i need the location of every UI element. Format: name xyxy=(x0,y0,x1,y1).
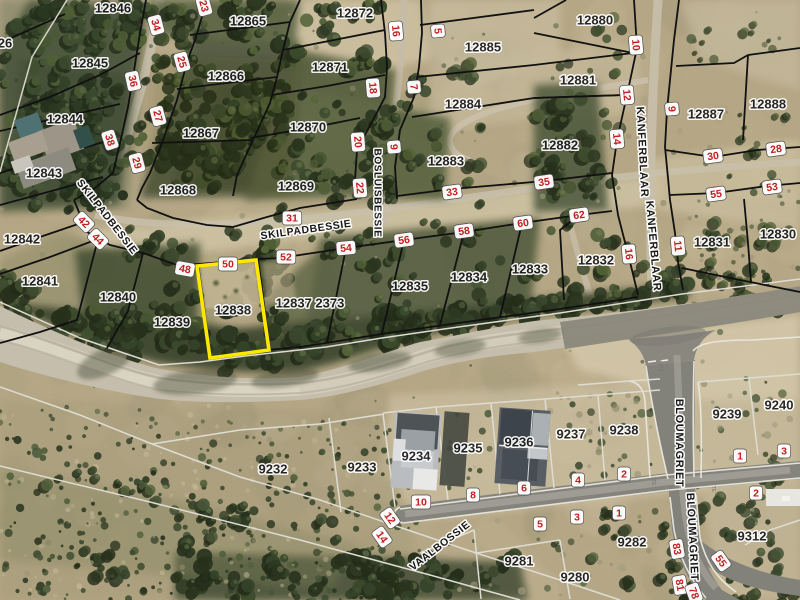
svg-text:30: 30 xyxy=(706,150,719,164)
svg-text:12883: 12883 xyxy=(428,154,464,169)
svg-text:20: 20 xyxy=(351,136,364,149)
svg-text:12832: 12832 xyxy=(578,253,614,268)
svg-text:BOSLUISBESSIE: BOSLUISBESSIE xyxy=(372,149,383,238)
svg-text:4: 4 xyxy=(575,475,581,487)
svg-text:12884: 12884 xyxy=(445,97,482,112)
svg-text:28: 28 xyxy=(769,143,782,157)
svg-text:16: 16 xyxy=(622,248,635,261)
svg-text:12830: 12830 xyxy=(760,227,796,242)
svg-text:56: 56 xyxy=(397,234,410,248)
svg-text:33: 33 xyxy=(445,186,458,200)
svg-text:12867: 12867 xyxy=(183,126,219,141)
svg-text:41TE: 41TE xyxy=(657,360,663,373)
svg-text:54: 54 xyxy=(340,242,353,255)
svg-text:26: 26 xyxy=(0,36,12,51)
svg-text:9232: 9232 xyxy=(259,462,288,477)
svg-text:60: 60 xyxy=(516,217,529,231)
svg-text:12881: 12881 xyxy=(560,73,596,88)
svg-text:9: 9 xyxy=(387,144,399,151)
svg-text:2: 2 xyxy=(621,469,627,481)
svg-text:12880: 12880 xyxy=(577,13,613,28)
svg-text:81: 81 xyxy=(673,578,687,592)
svg-text:12843: 12843 xyxy=(26,166,62,181)
svg-text:1: 1 xyxy=(616,508,622,520)
svg-text:9239: 9239 xyxy=(713,407,742,422)
svg-text:TE: TE xyxy=(710,486,716,493)
svg-text:12840: 12840 xyxy=(100,290,136,305)
svg-text:12882: 12882 xyxy=(542,138,578,153)
svg-text:58: 58 xyxy=(457,225,470,239)
svg-text:7: 7 xyxy=(407,84,419,91)
svg-text:35: 35 xyxy=(537,176,550,190)
svg-text:9238: 9238 xyxy=(610,423,639,438)
svg-text:83: 83 xyxy=(670,542,684,556)
svg-text:12887: 12887 xyxy=(688,107,724,122)
svg-text:1: 1 xyxy=(737,451,743,463)
svg-text:12837 2373: 12837 2373 xyxy=(276,296,345,311)
svg-text:BLOUMAGRIET: BLOUMAGRIET xyxy=(673,399,685,487)
svg-text:12844: 12844 xyxy=(47,112,84,127)
svg-text:8: 8 xyxy=(470,490,476,502)
svg-text:9235: 9235 xyxy=(454,441,483,456)
svg-text:1TE: 1TE xyxy=(650,476,656,486)
svg-text:52: 52 xyxy=(280,252,292,264)
svg-text:12839: 12839 xyxy=(154,315,190,330)
svg-text:11: 11 xyxy=(671,240,684,252)
svg-text:9280: 9280 xyxy=(561,570,590,585)
svg-text:5: 5 xyxy=(537,519,543,531)
svg-text:14: 14 xyxy=(610,133,623,146)
svg-text:50: 50 xyxy=(222,259,234,271)
svg-text:12870: 12870 xyxy=(290,120,326,135)
svg-text:9240: 9240 xyxy=(765,398,794,413)
svg-text:9312: 9312 xyxy=(738,529,767,544)
svg-text:12868: 12868 xyxy=(160,183,196,198)
svg-text:5: 5 xyxy=(431,28,443,35)
svg-text:16: 16 xyxy=(389,25,402,38)
svg-text:55: 55 xyxy=(709,188,722,202)
svg-text:12872: 12872 xyxy=(337,6,373,21)
svg-text:10: 10 xyxy=(415,497,427,509)
svg-text:10: 10 xyxy=(629,39,642,52)
svg-text:12831: 12831 xyxy=(694,235,730,250)
svg-text:9281: 9281 xyxy=(505,554,534,569)
svg-text:3: 3 xyxy=(781,446,787,458)
svg-text:12835: 12835 xyxy=(392,279,428,294)
svg-text:12846: 12846 xyxy=(95,1,131,16)
svg-text:12845: 12845 xyxy=(72,56,108,71)
svg-text:12838: 12838 xyxy=(215,303,251,318)
svg-text:9234: 9234 xyxy=(402,449,432,464)
svg-text:12833: 12833 xyxy=(512,262,548,277)
svg-text:62: 62 xyxy=(572,209,585,223)
svg-text:12866: 12866 xyxy=(208,69,244,84)
svg-text:9237: 9237 xyxy=(557,427,586,442)
svg-text:9233: 9233 xyxy=(348,460,377,475)
svg-text:12885: 12885 xyxy=(465,40,501,55)
svg-text:48: 48 xyxy=(178,263,192,277)
svg-text:53: 53 xyxy=(765,181,778,195)
svg-text:9236: 9236 xyxy=(505,435,534,450)
svg-text:3: 3 xyxy=(574,512,580,524)
svg-text:22: 22 xyxy=(353,182,366,195)
svg-text:12834: 12834 xyxy=(451,270,488,285)
svg-text:12842: 12842 xyxy=(4,232,40,247)
svg-text:12871: 12871 xyxy=(312,60,348,75)
svg-text:12869: 12869 xyxy=(278,179,314,194)
svg-text:12: 12 xyxy=(620,89,633,102)
svg-text:18: 18 xyxy=(366,82,379,95)
svg-text:2: 2 xyxy=(753,488,759,500)
svg-text:9282: 9282 xyxy=(618,535,647,550)
svg-text:12865: 12865 xyxy=(230,14,266,29)
svg-text:31: 31 xyxy=(286,213,298,225)
svg-text:12841: 12841 xyxy=(22,274,58,289)
svg-text:12888: 12888 xyxy=(750,97,786,112)
svg-text:9: 9 xyxy=(665,106,677,113)
svg-text:6: 6 xyxy=(521,483,527,495)
